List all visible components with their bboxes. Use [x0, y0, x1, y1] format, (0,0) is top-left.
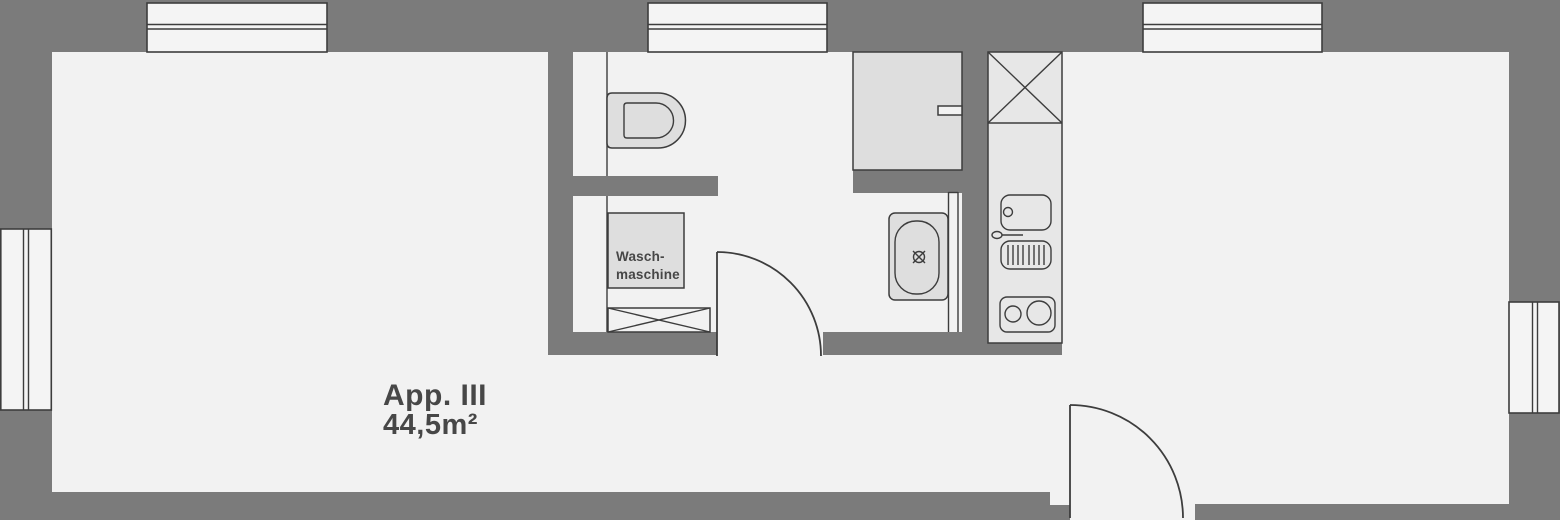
washing-machine: Wasch- maschine: [608, 213, 684, 288]
wall-bath-left: [548, 52, 573, 355]
wall-entry-jamb: [1050, 505, 1070, 520]
floorplan-apartment-3: Wasch- maschine: [0, 0, 1560, 520]
floorplan-drawing: Wasch- maschine: [0, 0, 1560, 520]
floor: [0, 0, 1560, 520]
washbasin: [889, 213, 948, 300]
window-top-1: [147, 3, 327, 52]
apartment-area: 44,5m²: [383, 409, 478, 441]
wall-bath-bottom-right: [823, 332, 962, 355]
wall-wc-divider: [548, 176, 718, 196]
washing-machine-label-line2: maschine: [616, 267, 680, 282]
window-left: [1, 229, 52, 410]
window-frame: [648, 3, 827, 52]
window-top-3: [1143, 3, 1322, 52]
shower: [853, 52, 962, 170]
window-frame: [1, 229, 52, 410]
apartment-title: App. III: [383, 379, 487, 412]
kitchen-block: [988, 52, 1062, 343]
wall-kitchen-bottom: [962, 343, 1062, 355]
wall-bath-bottom-left: [548, 332, 717, 355]
washing-machine-label-line1: Wasch-: [616, 249, 665, 264]
wall-bottom-right: [1195, 504, 1560, 520]
duct-shaft: [608, 308, 710, 332]
apartment-label: App. III 44,5m²: [383, 379, 487, 441]
window-frame: [1509, 302, 1559, 413]
window-frame: [1143, 3, 1322, 52]
wall-right: [1509, 52, 1560, 504]
wall-under-shower: [853, 170, 963, 193]
wall-bath-kitchen: [962, 52, 988, 355]
shower-door-notch: [938, 106, 962, 115]
toilet: [607, 93, 685, 148]
window-frame: [147, 3, 327, 52]
window-top-2: [648, 3, 827, 52]
kitchen-counter: [988, 52, 1062, 343]
wall-bottom-left: [52, 492, 1050, 520]
window-right: [1509, 302, 1559, 413]
